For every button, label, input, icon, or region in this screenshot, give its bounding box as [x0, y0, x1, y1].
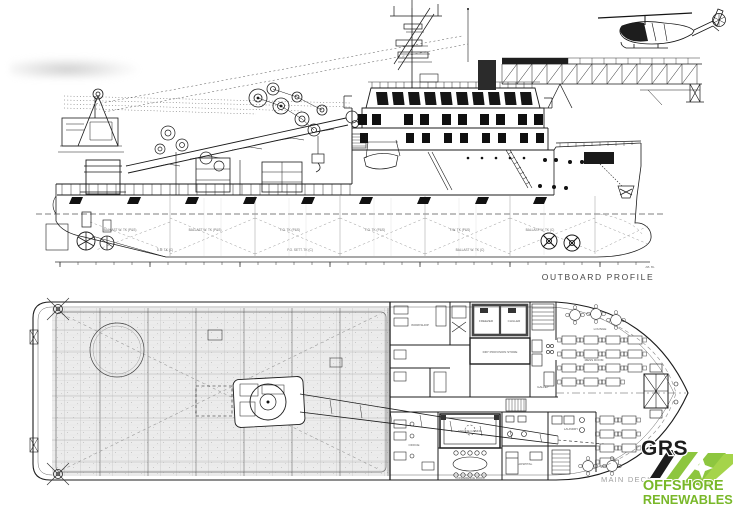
tank-label: F.O. SETT. TK (C): [287, 248, 313, 252]
grs-offshore-renewables-logo: GRS OFFSHORE RENEWABLES: [638, 428, 733, 512]
room-label: FREEZER: [479, 319, 494, 323]
room-label: LAUNDRY: [564, 427, 578, 431]
logo-brand-text: GRS: [641, 437, 688, 460]
tank-label: BALLAST W. TK (P&S): [189, 228, 222, 232]
windlass: [584, 152, 614, 164]
tank-label: F.O. TK (P&S): [280, 228, 300, 232]
superstructure-profile: [344, 0, 554, 190]
deckhouse-walls: [390, 302, 596, 480]
exhaust-tower: [478, 60, 496, 90]
accommodation-windows: [358, 114, 544, 143]
cold-store-block: [470, 302, 530, 364]
lounge-table: [566, 306, 585, 325]
gangway-truss: [502, 58, 704, 108]
tank-label: BALLAST W. TK (P&S): [104, 228, 137, 232]
room-label: OFFICE: [409, 443, 420, 447]
forecastle-details: [538, 141, 641, 251]
main-deck-plan-view: [30, 298, 688, 485]
anchor-pocket: [618, 186, 634, 198]
room-label: MESS ROOM: [585, 358, 604, 362]
room-label: LOUNGE: [594, 327, 607, 331]
room-label: ENGINE CASING: [458, 429, 483, 433]
sheave-cluster-lower: [155, 126, 224, 171]
tank-label: F.O. TK (P&S): [365, 228, 385, 232]
logo-svg: GRS OFFSHORE RENEWABLES: [638, 428, 733, 512]
outboard-profile-view: [36, 0, 704, 267]
drawing-sheet: BALLAST W. TK (P&S) BALLAST W. TK (P&S) …: [0, 0, 733, 512]
laundry-fittings: [552, 416, 585, 474]
tank-label: BALLAST W. TK (C): [526, 228, 555, 232]
landing-skids: [621, 42, 668, 48]
cargo-deck-planking: [52, 308, 390, 476]
conference-room-fittings: [453, 451, 487, 477]
tank-label: BALLAST W. TK (C): [456, 248, 485, 252]
baseline-note: AB. BL: [645, 265, 655, 269]
sheave-cluster: [249, 83, 327, 136]
room-label: CONFERENCE ROOM: [455, 476, 485, 480]
room-label: CHILLER: [508, 319, 522, 323]
logo-line2-text: RENEWABLES: [643, 492, 733, 507]
tank-label: D.B. TK (C): [157, 248, 173, 252]
general-arrangement-svg: BALLAST W. TK (P&S) BALLAST W. TK (P&S) …: [0, 0, 733, 512]
vessel-ga-drawing-page: { "profile": { "caption": "OUTBOARD PROF…: [0, 0, 733, 512]
sheer-marks: [69, 197, 547, 204]
bridge-windows: [376, 92, 533, 105]
room-label: HOSPITAL: [518, 462, 533, 466]
room-label: DRY PROVISION STORE: [483, 350, 518, 354]
tank-boundaries: [90, 214, 648, 254]
profile-caption: OUTBOARD PROFILE: [542, 272, 655, 282]
main-mast: [390, 0, 469, 88]
frame-ruler: [55, 262, 650, 267]
galley-fittings: [532, 304, 554, 386]
helicopter-illustration: [598, 9, 726, 48]
bow-thruster-1: [541, 233, 557, 249]
room-label: WORKSHOP: [411, 323, 429, 327]
tank-label: F.W. TK (P&S): [450, 228, 470, 232]
bow-thruster-2: [564, 235, 580, 251]
room-label: GALLEY: [537, 385, 549, 389]
rescue-boat: [364, 140, 400, 169]
